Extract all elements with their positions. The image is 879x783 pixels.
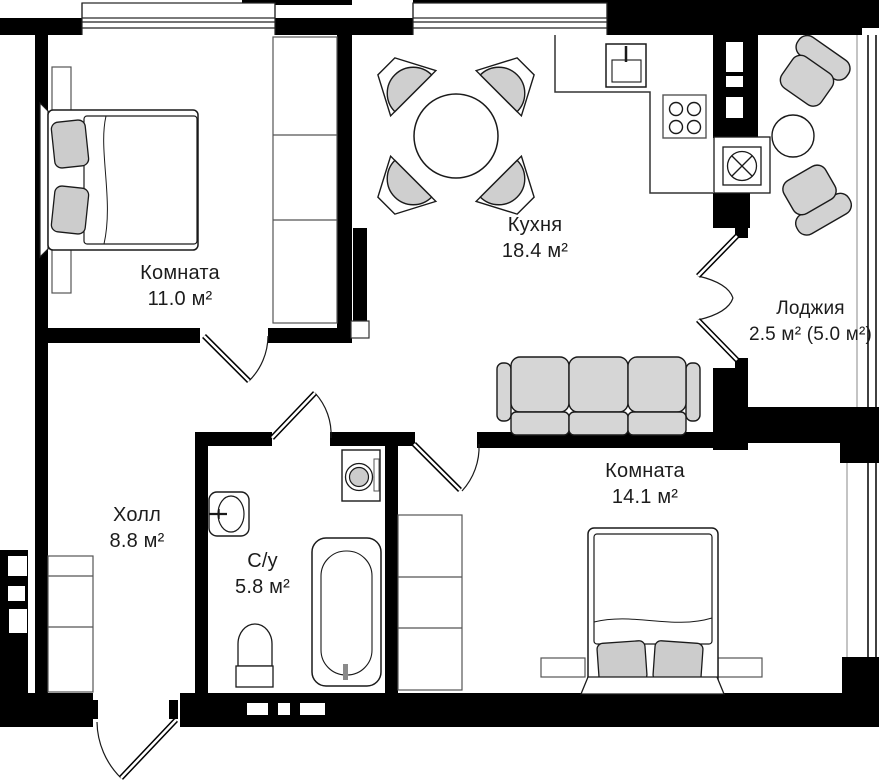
room-area: 11.0 м²: [85, 286, 275, 312]
nightstand: [541, 658, 585, 677]
nightstand: [718, 658, 762, 677]
armchair: [772, 32, 854, 114]
toilet: [236, 624, 273, 687]
bathroom-sink: [209, 492, 249, 536]
window-loggia: [857, 35, 876, 407]
wall-pilaster-cap: [351, 321, 369, 338]
coffee-table: [772, 115, 814, 157]
armchair: [774, 158, 855, 238]
wardrobe-bedroom-2: [398, 515, 462, 690]
room-area: 2.5 м² (5.0 м²): [742, 322, 879, 348]
floor-plan-svg: [0, 0, 879, 783]
room-name: Лоджия: [742, 296, 879, 322]
window-kitchen: [413, 3, 607, 35]
room-area: 5.8 м²: [200, 574, 325, 600]
room-label-loggia: Лоджия 2.5 м² (5.0 м²): [742, 296, 879, 348]
bed-double-2: [541, 528, 762, 694]
room-area: 18.4 м²: [440, 238, 630, 264]
kitchen-sink: [606, 44, 646, 87]
room-label-bedroom-2: Комната 14.1 м²: [550, 458, 740, 510]
door-bedroom-2: [414, 444, 479, 491]
room-label-bathroom: С/у 5.8 м²: [200, 548, 325, 600]
floor-plan: Комната 11.0 м² Кухня 18.4 м² Лоджия 2.5…: [0, 0, 879, 783]
door-entrance: [97, 720, 176, 778]
dining-set: [364, 44, 549, 229]
stove: [663, 95, 706, 138]
sofa: [497, 357, 700, 435]
door-bedroom-1: [204, 336, 268, 381]
window-bedroom-1: [82, 3, 275, 35]
room-name: Комната: [85, 260, 275, 286]
room-label-kitchen: Кухня 18.4 м²: [440, 212, 630, 264]
door-bathroom: [272, 393, 331, 438]
room-name: Комната: [550, 458, 740, 484]
dining-chair: [364, 156, 436, 228]
room-label-bedroom-1: Комната 11.0 м²: [85, 260, 275, 312]
room-label-hall: Холл 8.8 м²: [62, 502, 212, 554]
washing-machine: [342, 450, 380, 501]
room-area: 14.1 м²: [550, 484, 740, 510]
nightstand: [52, 67, 71, 112]
room-name: Холл: [62, 502, 212, 528]
room-area: 8.8 м²: [62, 528, 212, 554]
room-name: Кухня: [440, 212, 630, 238]
hall-closet: [48, 556, 93, 692]
window-bedroom-2: [847, 463, 876, 657]
room-name: С/у: [200, 548, 325, 574]
bathtub-tap: [343, 664, 348, 680]
dining-chair: [476, 44, 548, 116]
loggia-furniture: [772, 32, 855, 239]
wardrobe-bedroom-1: [273, 37, 337, 323]
door-loggia-double: [698, 236, 737, 360]
ventilation-unit-icon: [714, 137, 770, 193]
dining-table: [414, 94, 498, 178]
nightstand: [52, 248, 71, 293]
dining-chair: [364, 44, 436, 116]
